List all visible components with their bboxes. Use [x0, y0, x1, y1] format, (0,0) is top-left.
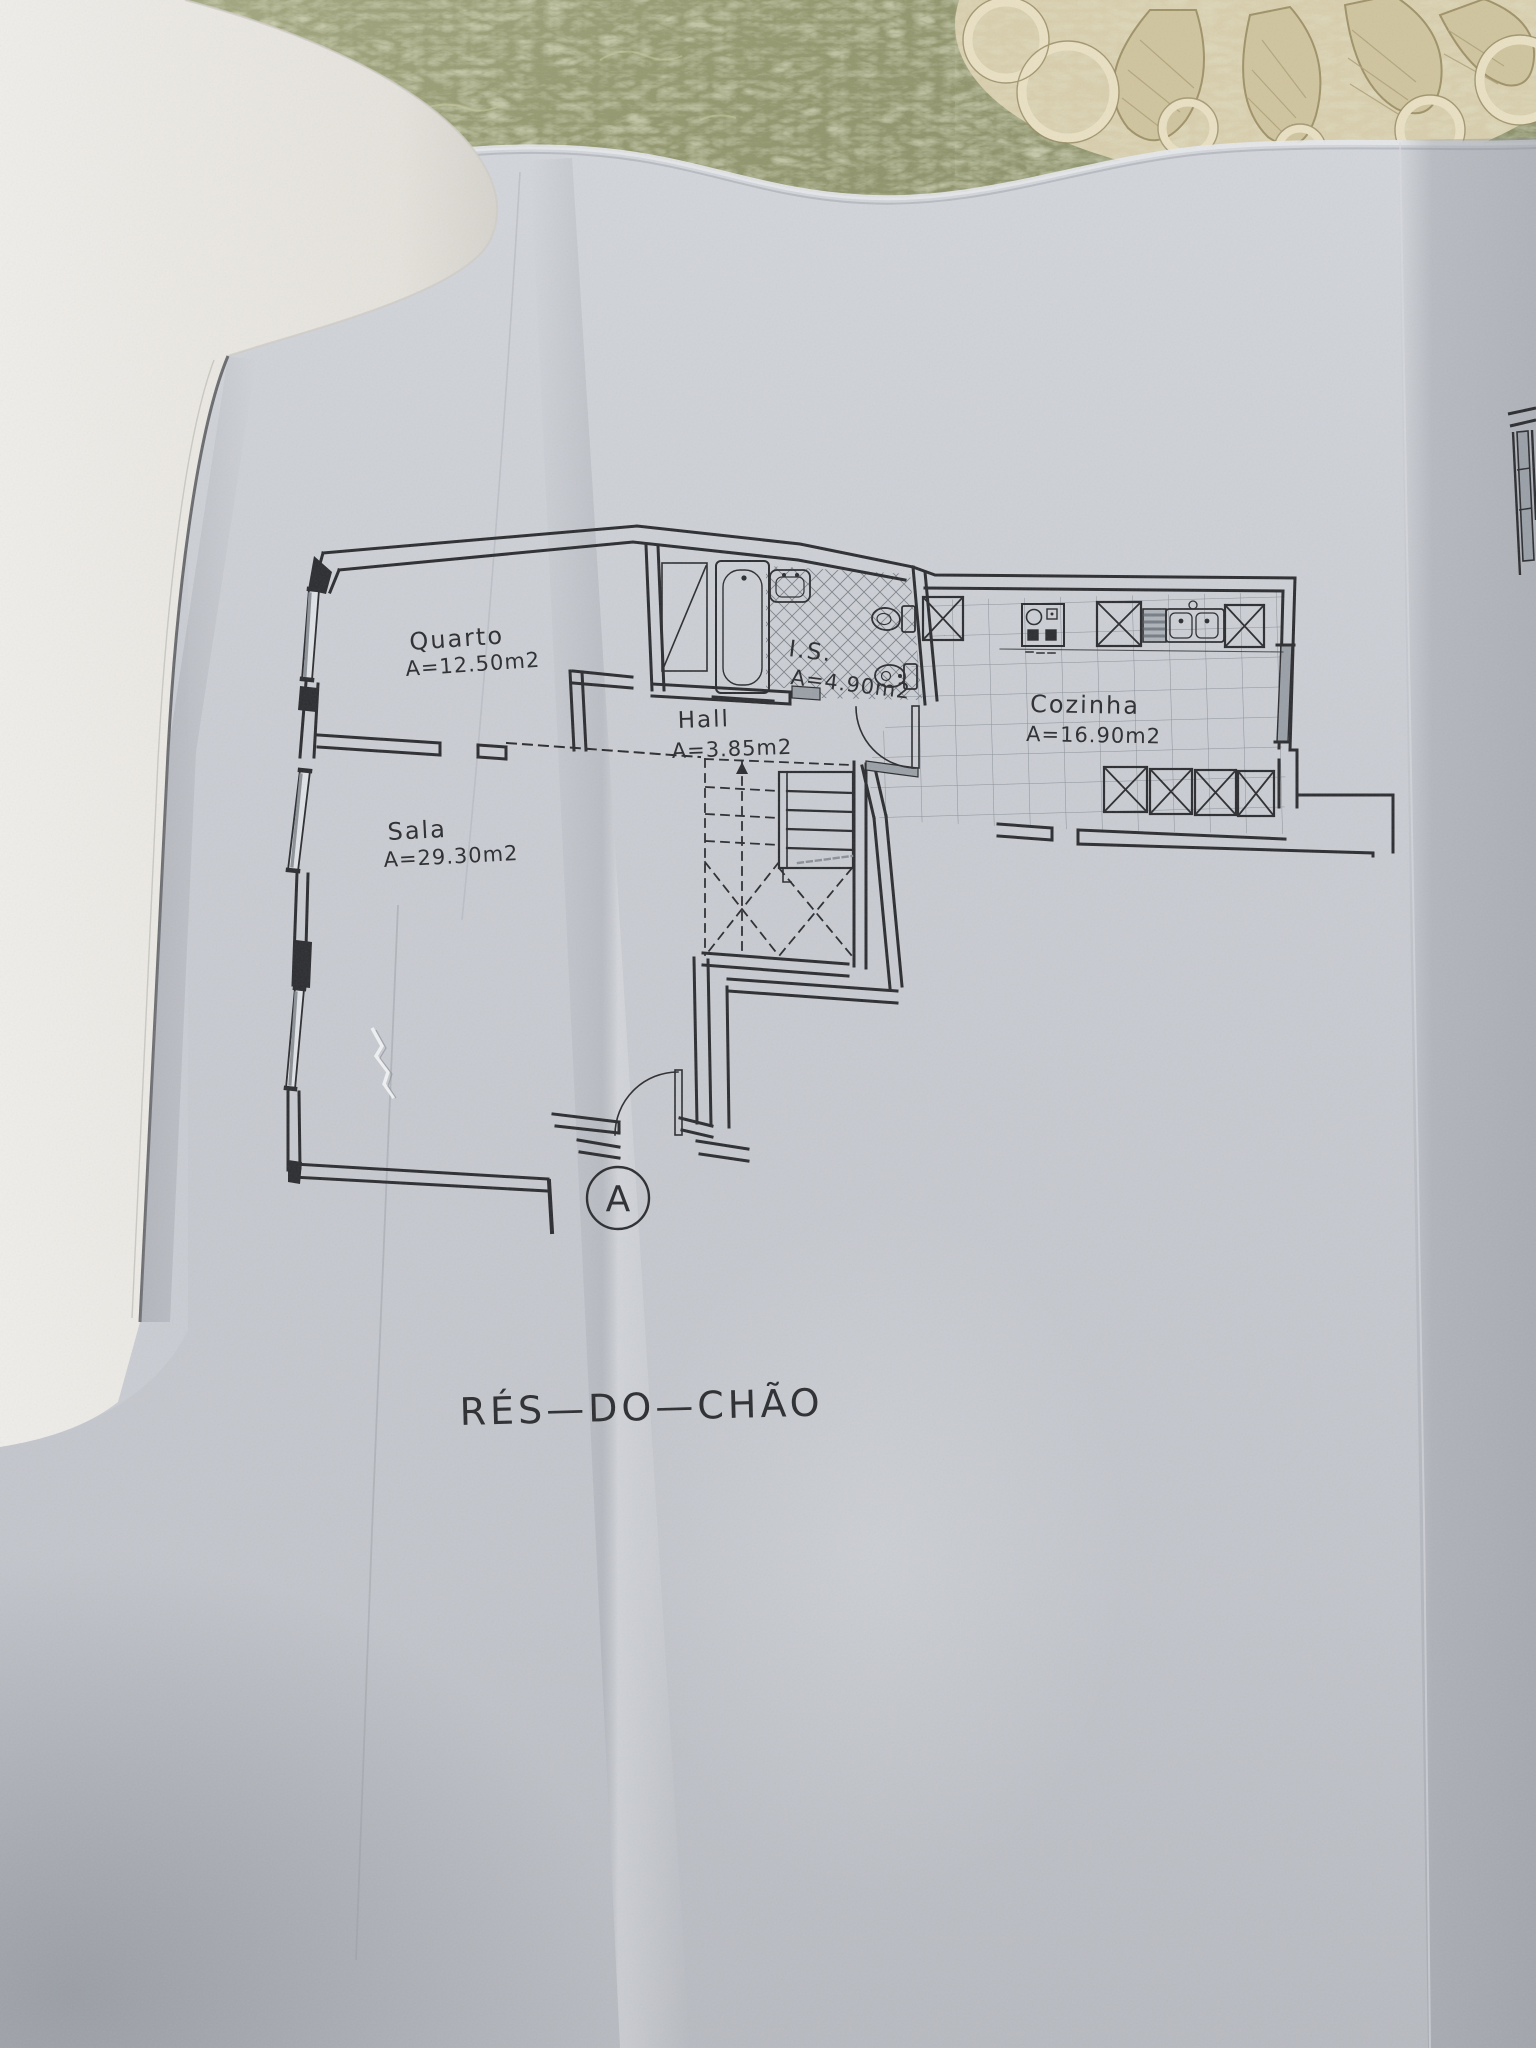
photo-of-floor-plan-page: A Quarto A=12.50m2 Sala A=29.30m2 Hall A… — [0, 0, 1536, 2048]
photo-grain — [0, 0, 1536, 2048]
